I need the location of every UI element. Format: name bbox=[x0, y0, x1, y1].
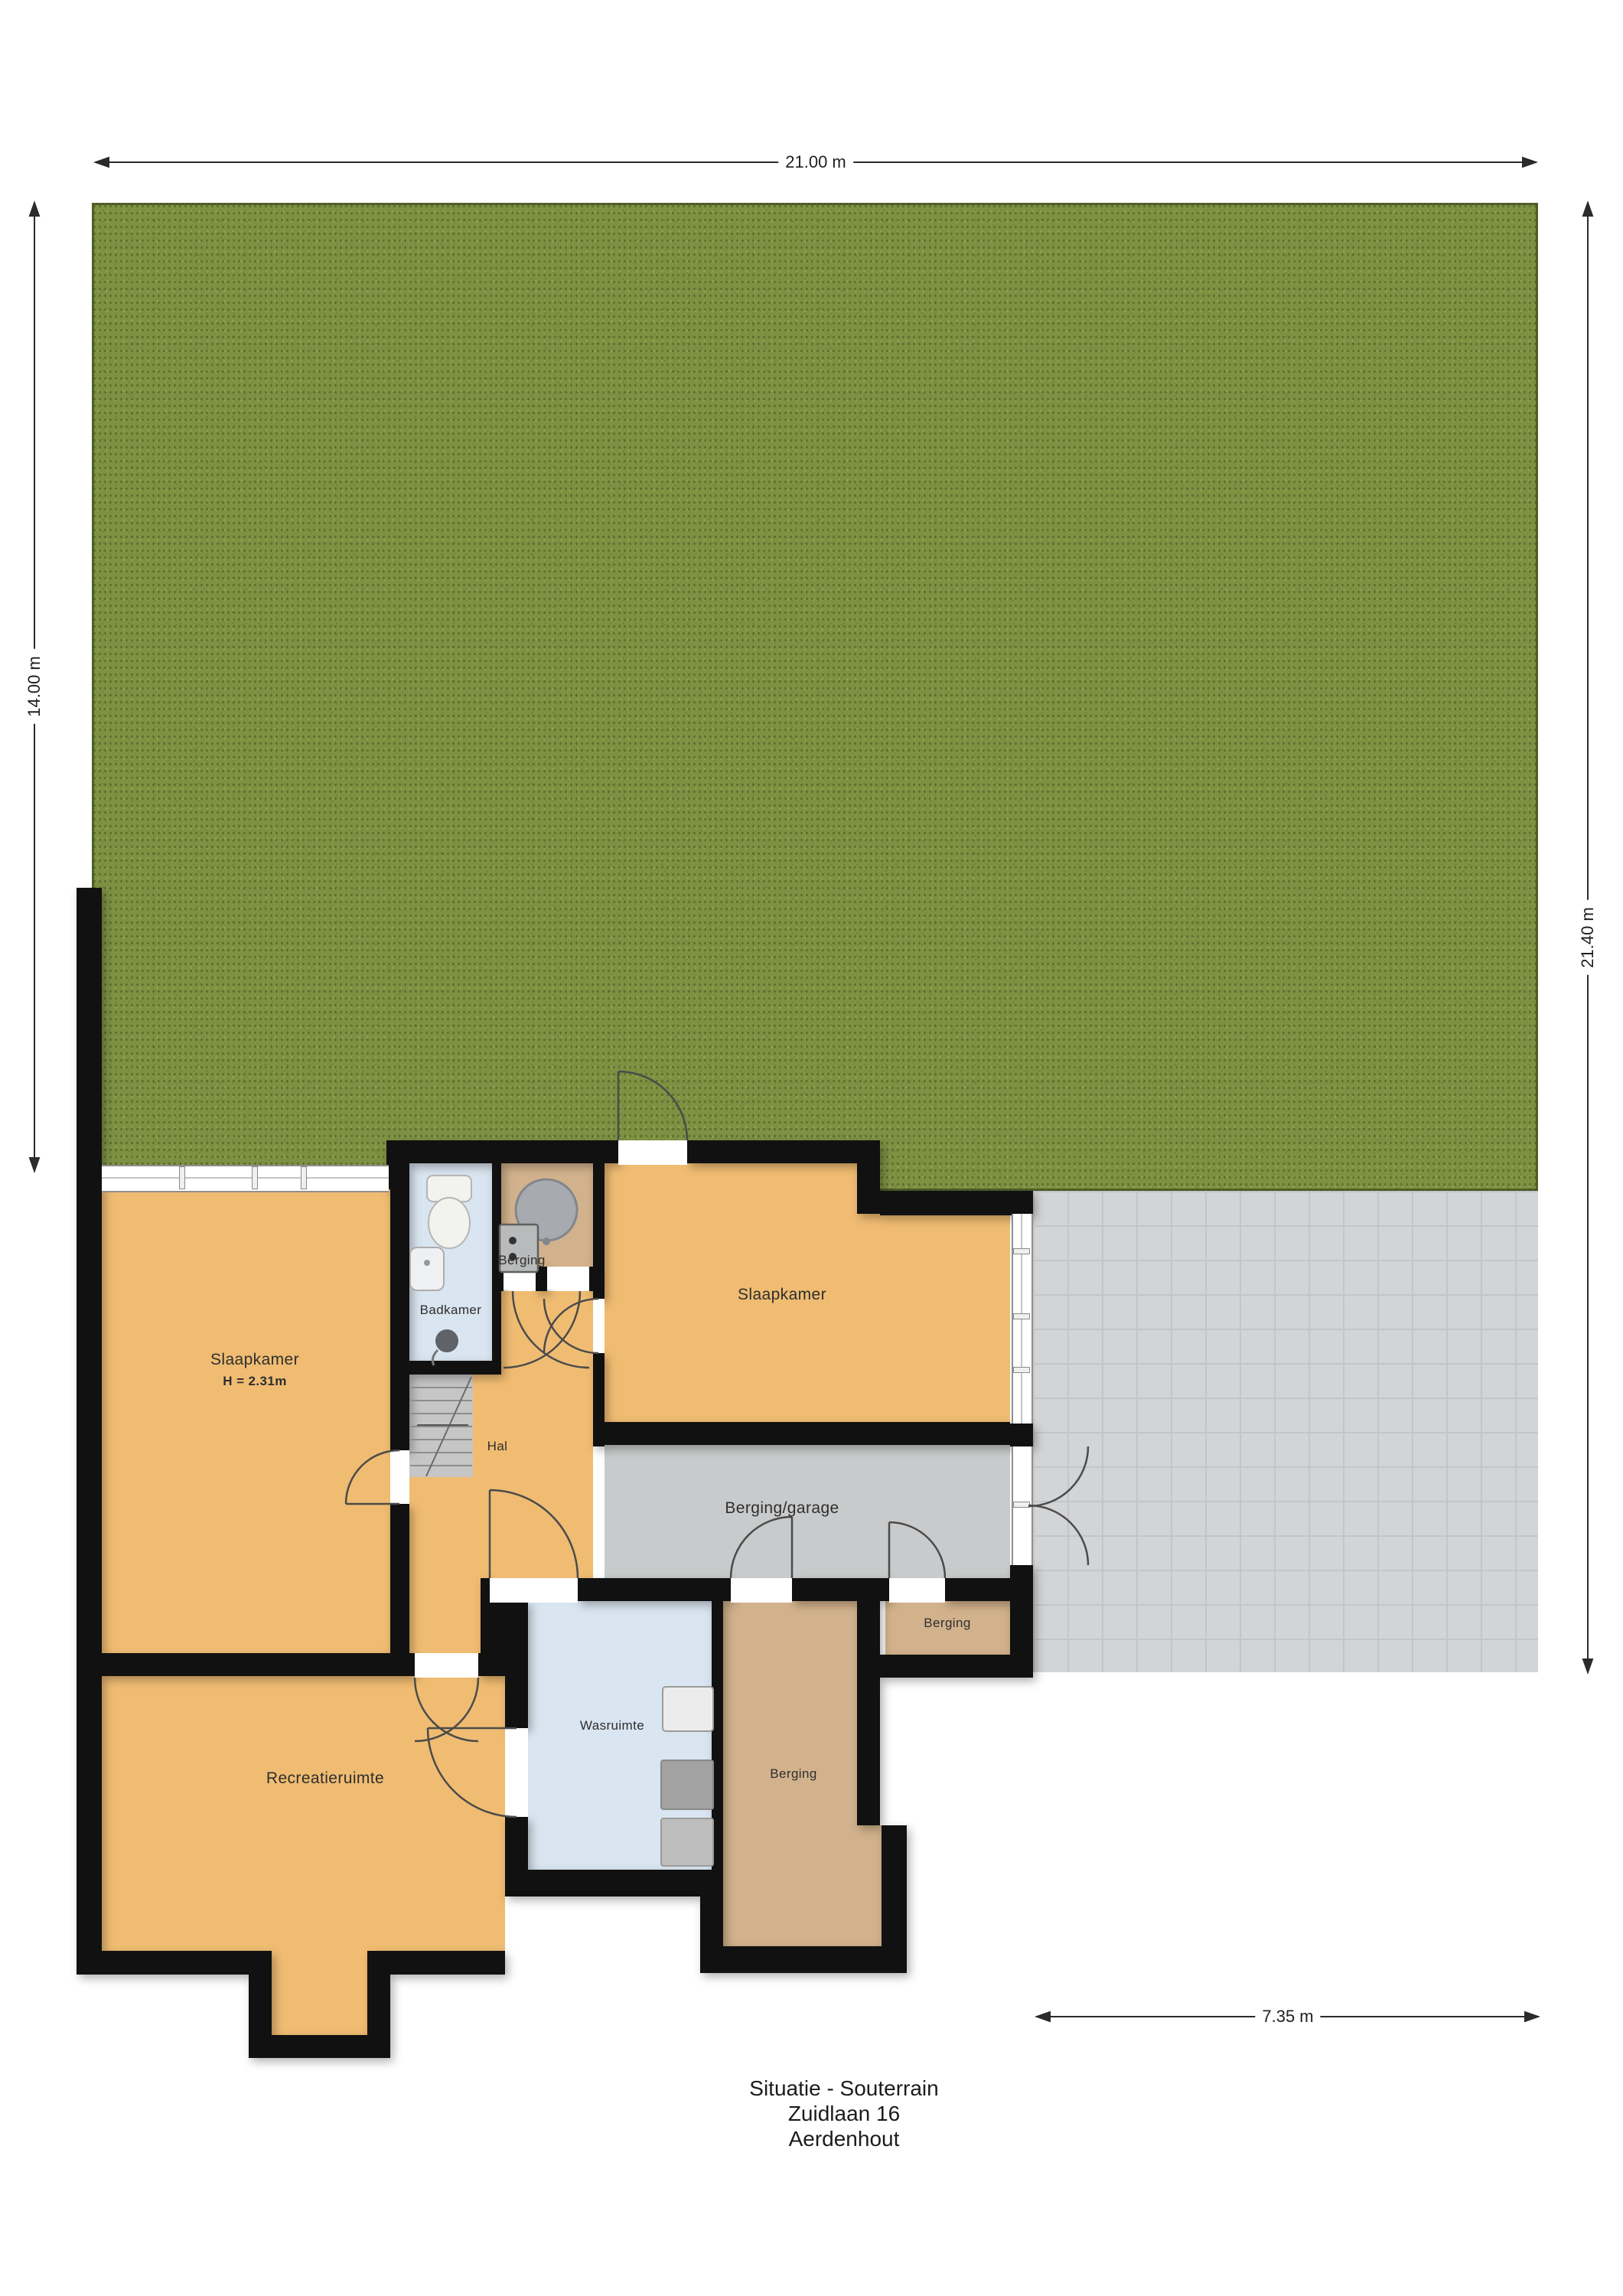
wall-segment bbox=[1010, 1424, 1033, 1446]
dimension-label-left: 14.00 m bbox=[24, 649, 45, 724]
wall-segment bbox=[536, 1267, 547, 1291]
wall-segment bbox=[492, 1291, 501, 1361]
wall-segment bbox=[857, 1140, 880, 1214]
door-berging-garage bbox=[731, 1578, 792, 1603]
plan-title-line3: Aerdenhout bbox=[691, 2126, 997, 2151]
wall-segment bbox=[593, 1163, 605, 1299]
window-slaapkamer-right bbox=[1012, 1214, 1033, 1424]
plan-title-line2: Zuidlaan 16 bbox=[691, 2101, 997, 2126]
wall-segment bbox=[700, 1946, 882, 1973]
wall-segment bbox=[505, 1817, 528, 1870]
door-pivot bbox=[1013, 1502, 1030, 1508]
wall-segment bbox=[398, 1361, 501, 1375]
wall-segment bbox=[386, 1140, 618, 1163]
dimension-label-bottom: 7.35 m bbox=[1255, 2006, 1320, 2027]
plan-title-line1: Situatie - Souterrain bbox=[691, 2076, 997, 2101]
window-slaapkamer-left bbox=[102, 1165, 389, 1192]
wall-segment bbox=[481, 1601, 505, 1653]
door-berging-right-garage bbox=[889, 1578, 945, 1603]
room-label-hal: Hal bbox=[487, 1439, 508, 1454]
wall-segment bbox=[712, 1601, 723, 1870]
door-recreatie-wasruimte bbox=[505, 1728, 528, 1817]
wall-segment bbox=[390, 1163, 409, 1450]
door-slaapkamer-left bbox=[390, 1450, 409, 1504]
wall-segment bbox=[390, 1504, 409, 1655]
room-label-text: Slaapkamer bbox=[210, 1351, 299, 1369]
room-label-berging-top: Berging bbox=[498, 1253, 545, 1268]
wall-segment bbox=[77, 1167, 102, 1975]
plan-title: Situatie - Souterrain Zuidlaan 16 Aerden… bbox=[691, 2076, 997, 2151]
wall-segment bbox=[505, 1601, 528, 1728]
window-mullion bbox=[1013, 1313, 1030, 1319]
door-berging-top-1 bbox=[504, 1268, 536, 1290]
wall-segment bbox=[578, 1578, 731, 1601]
window-mullion bbox=[1013, 1248, 1030, 1254]
wall-segment bbox=[77, 888, 102, 1167]
room-label-berging-garage: Berging/garage bbox=[725, 1499, 839, 1518]
room-label-badkamer: Badkamer bbox=[420, 1303, 482, 1318]
wall-segment bbox=[492, 1267, 504, 1291]
window-mullion bbox=[301, 1166, 307, 1189]
wall-segment bbox=[505, 1870, 723, 1896]
wall-segment bbox=[687, 1140, 880, 1163]
wall-segment bbox=[792, 1578, 889, 1601]
room-label-berging-right: Berging bbox=[924, 1616, 970, 1631]
garage-double-door-opening bbox=[1012, 1446, 1033, 1565]
walls-layer bbox=[0, 0, 1623, 2296]
window-mullion bbox=[179, 1166, 185, 1189]
room-height-note: H = 2.31m bbox=[210, 1374, 299, 1389]
window-mullion bbox=[252, 1166, 258, 1189]
wall-segment bbox=[478, 1653, 505, 1676]
wall-segment bbox=[605, 1422, 1010, 1445]
room-label-recreatieruimte: Recreatieruimte bbox=[266, 1769, 384, 1788]
window-mullion bbox=[1013, 1367, 1030, 1373]
wall-segment bbox=[880, 1191, 1033, 1215]
wall-segment bbox=[882, 1825, 907, 1973]
door-hal-wasruimte bbox=[490, 1578, 578, 1603]
room-label-slaapkamer-left: Slaapkamer H = 2.31m bbox=[210, 1351, 299, 1389]
room-label-berging-bottom: Berging bbox=[770, 1766, 816, 1782]
room-label-slaapkamer-right: Slaapkamer bbox=[738, 1286, 826, 1304]
wall-segment bbox=[77, 1951, 272, 1975]
door-garden bbox=[618, 1140, 687, 1165]
room-label-wasruimte: Wasruimte bbox=[580, 1718, 644, 1733]
dimension-label-top: 21.00 m bbox=[778, 152, 853, 173]
door-hal-recreatieruimte bbox=[415, 1653, 478, 1678]
door-slaapkamer-right bbox=[593, 1299, 605, 1353]
floorplan-page: 21.00 m 14.00 m 21.40 m 7.35 m Slaapkame… bbox=[0, 0, 1623, 2296]
window-frame-line bbox=[102, 1177, 389, 1179]
dimension-label-right: 21.40 m bbox=[1577, 900, 1599, 975]
wall-segment bbox=[77, 1653, 415, 1676]
wall-segment bbox=[862, 1655, 1033, 1678]
wall-segment bbox=[593, 1353, 605, 1446]
wall-segment bbox=[249, 2035, 390, 2058]
wall-segment bbox=[481, 1578, 490, 1601]
door-berging-top-2 bbox=[547, 1268, 589, 1290]
wall-segment bbox=[857, 1601, 880, 1825]
